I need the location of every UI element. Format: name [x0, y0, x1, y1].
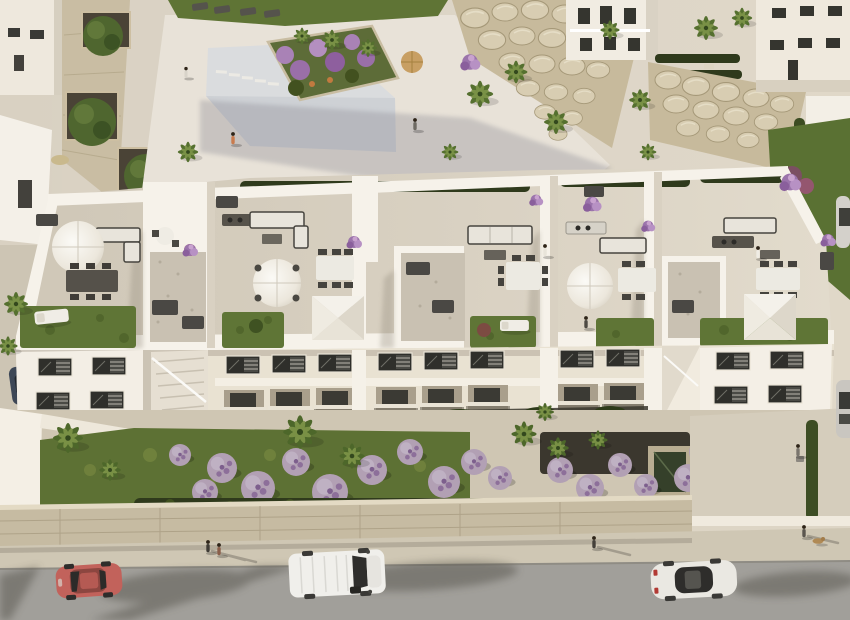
- boulder-instance: [478, 31, 505, 50]
- win-instance: [770, 351, 804, 369]
- boulder-instance: [461, 8, 490, 28]
- villa-door: [14, 55, 24, 71]
- win-instance: [36, 392, 70, 410]
- bistro-chair: [152, 230, 159, 237]
- sofa-long: [468, 226, 532, 244]
- boulder-instance: [663, 95, 689, 113]
- dining-table-white: [756, 268, 800, 290]
- sedan-roof: [684, 570, 701, 589]
- win-instance: [318, 354, 352, 372]
- dining-table-dark: [66, 270, 118, 292]
- aerial-render-canvas: [0, 0, 850, 620]
- wall-spur: [366, 176, 378, 262]
- potted-tree: [249, 319, 263, 333]
- boulder-instance: [544, 84, 567, 100]
- boulder-instance: [723, 107, 749, 125]
- win-instance: [424, 352, 458, 370]
- car-glass: [839, 208, 850, 226]
- dining-table-white: [316, 256, 354, 280]
- villa-window: [8, 28, 20, 37]
- boulder-instance: [706, 126, 729, 142]
- parked-car-right-partial: [836, 380, 850, 438]
- win-instance: [470, 351, 504, 369]
- van-hood: [366, 555, 382, 588]
- recess-instance: [374, 387, 418, 414]
- win-instance: [92, 357, 126, 375]
- windshield: [352, 555, 368, 590]
- sofa: [724, 218, 776, 233]
- lawn-lounger: [500, 320, 531, 335]
- scene-svg: [0, 0, 850, 620]
- coffee-table: [760, 250, 780, 259]
- red-shrub: [477, 323, 491, 337]
- boulder-instance: [509, 27, 535, 45]
- tan-parasol: [401, 51, 423, 73]
- boulder-instance: [770, 96, 793, 112]
- boulder-instance: [529, 55, 555, 73]
- boulder-instance: [586, 62, 609, 78]
- coffee-table: [484, 250, 506, 260]
- white-sedan: [650, 558, 738, 602]
- win-instance: [560, 350, 594, 368]
- dining-table-white: [506, 262, 540, 290]
- shade-canopy: [312, 296, 364, 340]
- boulder-instance: [737, 132, 759, 147]
- boulder-instance: [538, 29, 565, 48]
- sofa: [600, 238, 646, 253]
- boulder-instance: [676, 120, 699, 136]
- grill-burner: [238, 218, 243, 223]
- win-instance: [606, 349, 640, 367]
- win-instance: [226, 356, 260, 374]
- villa-left-door: [18, 180, 32, 208]
- boulder-instance: [682, 77, 709, 96]
- win-instance: [714, 386, 748, 404]
- boulder-instance: [655, 71, 681, 89]
- headlights: [58, 579, 63, 587]
- sofa-corner: [124, 242, 140, 262]
- villa-window: [30, 30, 44, 39]
- grill-counter: [222, 214, 252, 226]
- recess-instance: [420, 386, 464, 413]
- recess-instance: [466, 385, 510, 412]
- recess-instance: [556, 384, 600, 411]
- villa-shade: [54, 0, 62, 95]
- boulder-instance: [521, 1, 548, 20]
- grill-burner: [576, 226, 581, 231]
- grill-burner: [732, 240, 737, 245]
- bistro-chair: [172, 240, 179, 247]
- boulder-instance: [573, 88, 595, 103]
- coffee-table: [262, 234, 282, 244]
- win-instance: [768, 385, 802, 403]
- dining-table-white: [618, 268, 656, 292]
- sofa-corner: [294, 226, 308, 248]
- neighbor-tr-shade: [756, 80, 850, 92]
- white-van: [288, 547, 386, 600]
- door-window: [350, 586, 361, 594]
- win-instance: [272, 355, 306, 373]
- red-car: [55, 560, 123, 601]
- boulder-instance: [492, 3, 518, 21]
- win-instance: [90, 391, 124, 409]
- grill-burner: [228, 218, 233, 223]
- grass-tuft: [51, 155, 69, 165]
- stairwell-right: [662, 346, 700, 420]
- boulder-instance: [754, 114, 777, 130]
- taillight: [654, 588, 658, 594]
- grill-burner: [722, 240, 727, 245]
- win-instance: [38, 358, 72, 376]
- boulder-instance: [712, 83, 739, 102]
- win-instance: [378, 353, 412, 371]
- driveway-hedge: [806, 420, 818, 520]
- shade-canopy: [744, 294, 796, 340]
- boulder-instance: [693, 101, 719, 119]
- win-instance: [716, 352, 750, 370]
- recess-instance: [602, 383, 646, 410]
- taillight: [653, 570, 657, 576]
- villa-top-left: [0, 0, 62, 95]
- grill-burner: [586, 226, 591, 231]
- car-roof: [79, 572, 98, 589]
